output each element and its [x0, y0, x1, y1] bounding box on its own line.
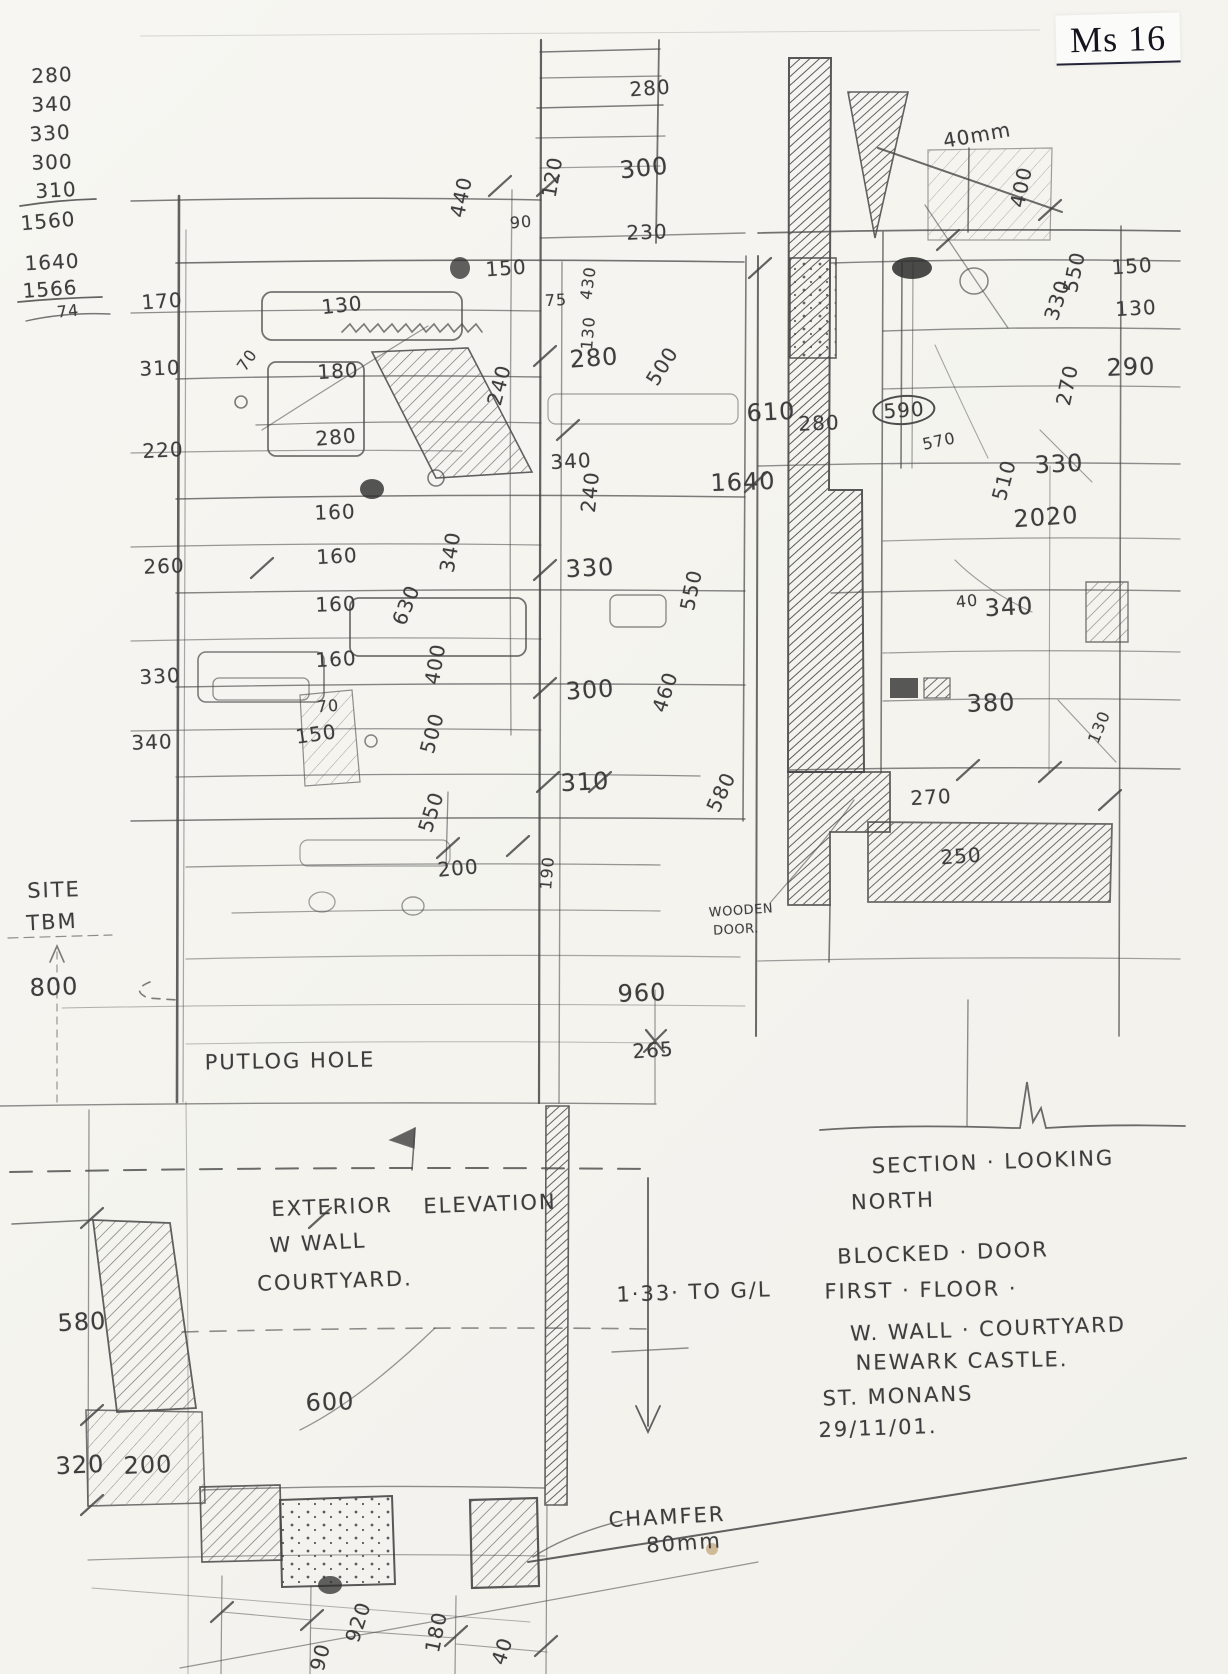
- annotation-label: 200: [436, 854, 479, 881]
- annotation-label: 240: [576, 470, 604, 513]
- annotation-label: 260: [143, 553, 185, 578]
- annotation-label: 200: [123, 1450, 173, 1480]
- annotation-label: 330: [29, 120, 72, 147]
- annotation-label: WOODEN: [708, 901, 773, 920]
- annotation-label: 90: [305, 1641, 335, 1674]
- annotation-label: 280: [629, 75, 672, 102]
- annotation-label: 1640: [24, 249, 80, 276]
- annotation-label: 330: [1034, 449, 1084, 480]
- annotation-label: 340: [435, 530, 466, 575]
- annotation-label: 580: [701, 768, 740, 815]
- annotation-label: 170: [141, 288, 184, 315]
- annotation-label: 550: [413, 789, 449, 836]
- annotation-label: 460: [647, 669, 683, 716]
- annotation-label: 40mm: [941, 117, 1013, 153]
- annotation-label: 590: [871, 393, 936, 427]
- annotation-label: 160: [314, 499, 356, 524]
- annotation-label: 330: [139, 663, 181, 689]
- annotation-label: 920: [340, 1599, 376, 1646]
- annotation-label: 130: [1084, 708, 1114, 746]
- annotation-label: 230: [626, 219, 668, 244]
- annotation-label: 500: [641, 342, 683, 390]
- annotation-label: COURTYARD.: [257, 1266, 413, 1295]
- annotation-label: 310: [560, 767, 610, 798]
- annotation-label: 340: [984, 592, 1034, 623]
- annotation-label: SECTION · LOOKING: [871, 1146, 1114, 1178]
- annotation-label: 90: [509, 212, 533, 233]
- annotation-label: 440: [445, 174, 477, 219]
- annotation-label: PUTLOG HOLE: [205, 1048, 376, 1075]
- annotation-label: 180: [420, 1609, 452, 1654]
- annotation-label: 270: [1051, 362, 1083, 407]
- annotation-label: 300: [565, 674, 616, 705]
- annotation-label: 960: [617, 978, 667, 1008]
- annotation-label: 40: [486, 1634, 517, 1668]
- annotation-label: TBM: [26, 909, 79, 936]
- annotation-label: 300: [618, 152, 669, 185]
- annotation-label: 270: [910, 784, 952, 810]
- annotation-label: 160: [316, 543, 358, 569]
- annotation-label: DOOR.: [713, 921, 759, 938]
- annotation-label: EXTERIOR: [271, 1193, 393, 1221]
- annotation-label: 580: [57, 1307, 107, 1338]
- annotation-label: 150: [485, 255, 528, 282]
- annotation-label: 75: [544, 290, 567, 310]
- annotation-label: 500: [415, 710, 449, 756]
- annotation-label: 800: [29, 972, 79, 1002]
- annotation-label: 160: [315, 646, 357, 672]
- annotation-label: 2020: [1013, 501, 1080, 533]
- annotation-label: 1566: [22, 275, 78, 303]
- annotation-label: FIRST · FLOOR ·: [824, 1276, 1017, 1303]
- annotation-label: 280: [31, 62, 73, 88]
- annotation-label: NEWARK CASTLE.: [855, 1347, 1068, 1375]
- annotation-label: 1·33· TO G/L: [616, 1277, 772, 1306]
- annotation-label: 74: [56, 300, 80, 321]
- annotation-layer: 2803403303003101560164015667417031022026…: [0, 0, 1228, 1674]
- annotation-label: 300: [31, 149, 73, 174]
- annotation-label: 430: [576, 265, 599, 301]
- annotation-label: 280: [314, 423, 357, 450]
- annotation-label: 1640: [710, 467, 776, 497]
- manuscript-number-sticker: Ms 16: [1055, 12, 1180, 65]
- annotation-label: 240: [482, 362, 516, 408]
- annotation-label: 150: [1111, 253, 1154, 280]
- annotation-label: 330: [565, 553, 615, 584]
- annotation-label: 120: [537, 155, 568, 200]
- annotation-label: 180: [317, 358, 359, 384]
- annotation-label: 330: [1039, 277, 1075, 324]
- annotation-label: 190: [536, 855, 558, 890]
- annotation-label: 150: [294, 719, 338, 748]
- annotation-label: 29/11/01.: [818, 1414, 938, 1442]
- annotation-label: CHAMFER: [608, 1502, 726, 1532]
- annotation-label: ELEVATION: [423, 1190, 557, 1219]
- annotation-label: 280: [798, 410, 840, 435]
- annotation-label: 40: [955, 590, 979, 611]
- annotation-label: 610: [746, 397, 796, 428]
- annotation-label: 220: [142, 437, 184, 463]
- manuscript-number: Ms 16: [1069, 18, 1166, 61]
- annotation-label: 70: [316, 696, 340, 717]
- annotation-label: 290: [1106, 352, 1156, 382]
- annotation-label: 250: [940, 843, 983, 870]
- annotation-label: 630: [387, 581, 425, 628]
- annotation-label: 1560: [20, 207, 77, 236]
- annotation-label: 340: [31, 91, 73, 116]
- annotation-label: NORTH: [851, 1188, 936, 1215]
- annotation-label: 265: [632, 1037, 675, 1064]
- annotation-label: 400: [1005, 164, 1037, 209]
- annotation-label: 130: [320, 291, 363, 319]
- annotation-label: 600: [305, 1387, 355, 1417]
- annotation-label: 80mm: [645, 1528, 722, 1557]
- annotation-label: ST. MONANS: [822, 1381, 974, 1410]
- annotation-label: SITE: [27, 877, 81, 903]
- scanned-sketch-page: 2803403303003101560164015667417031022026…: [0, 0, 1228, 1674]
- annotation-label: 510: [987, 457, 1021, 503]
- annotation-label: 340: [131, 729, 173, 754]
- annotation-label: 280: [569, 342, 620, 373]
- annotation-label: 570: [921, 428, 958, 454]
- annotation-label: 380: [966, 688, 1016, 718]
- annotation-label: 310: [35, 177, 77, 203]
- annotation-label: 70: [233, 345, 261, 374]
- annotation-label: BLOCKED · DOOR: [837, 1237, 1049, 1268]
- annotation-label: 400: [420, 642, 451, 687]
- annotation-label: 160: [315, 591, 357, 616]
- annotation-label: 130: [1115, 295, 1157, 321]
- annotation-label: 550: [675, 567, 707, 612]
- annotation-label: 320: [55, 1450, 105, 1481]
- annotation-label: 310: [139, 355, 181, 380]
- annotation-label: W. WALL · COURTYARD: [850, 1312, 1127, 1346]
- annotation-label: W WALL: [269, 1228, 367, 1257]
